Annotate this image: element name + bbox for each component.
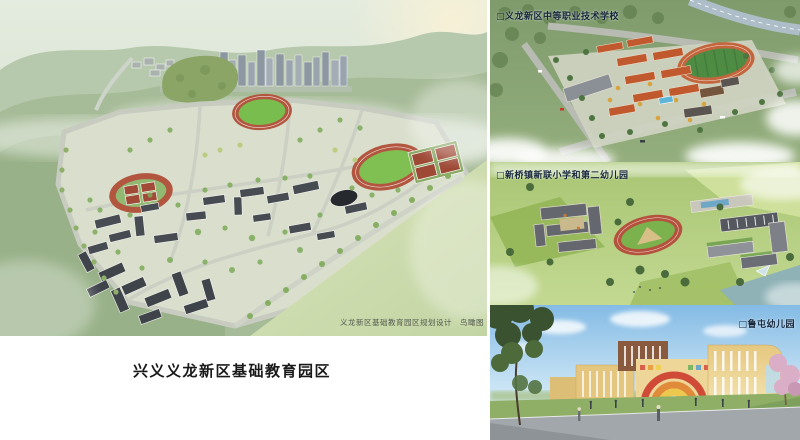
masterplan-rendering: [0, 0, 487, 336]
lutun-kindergarten-label: □鲁屯幼儿园: [738, 317, 795, 330]
primary-school-label: □新桥镇新联小学和第二幼儿园: [496, 168, 629, 181]
vocational-school-rendering: [490, 0, 800, 162]
masterplan-panel: 义龙新区基础教育园区规划设计 鸟瞰图: [0, 0, 487, 336]
presentation-sheet: 义龙新区基础教育园区规划设计 鸟瞰图 兴义义龙新区基础教育园区: [0, 0, 800, 440]
page-title: 兴义义龙新区基础教育园区: [133, 360, 331, 381]
vocational-school-label: □义龙新区中等职业技术学校: [496, 9, 619, 22]
panel-lutun-kindergarten: □鲁屯幼儿园: [490, 305, 800, 440]
primary-school-rendering: [490, 162, 800, 305]
panel-primary-school-kindergarten: □新桥镇新联小学和第二幼儿园: [490, 162, 800, 305]
right-column: □义龙新区中等职业技术学校: [490, 0, 800, 440]
masterplan-attribution: 义龙新区基础教育园区规划设计 鸟瞰图: [340, 317, 484, 328]
panel-vocational-school: □义龙新区中等职业技术学校: [490, 0, 800, 162]
